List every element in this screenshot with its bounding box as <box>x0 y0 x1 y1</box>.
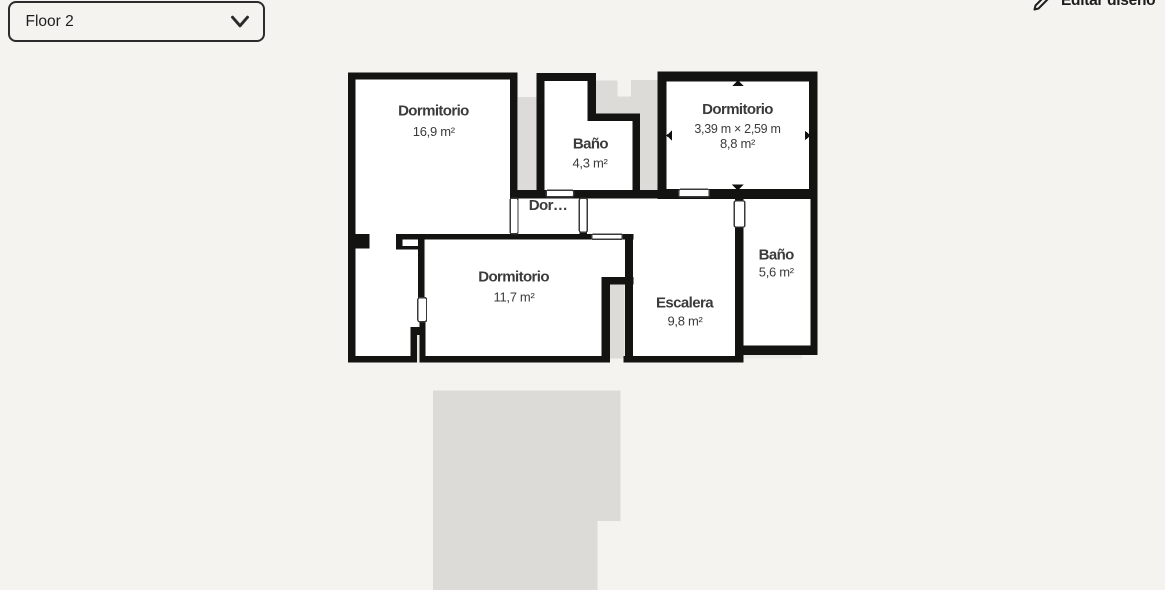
svg-text:11,7 m²: 11,7 m² <box>493 290 535 305</box>
svg-text:9,8 m²: 9,8 m² <box>667 313 703 328</box>
svg-text:Dormitorio: Dormitorio <box>478 268 549 285</box>
svg-text:Escalera: Escalera <box>656 295 714 312</box>
svg-text:Dormitorio: Dormitorio <box>702 101 773 118</box>
svg-text:Baño: Baño <box>759 247 795 264</box>
svg-text:8,8 m²: 8,8 m² <box>720 136 756 151</box>
svg-text:4,3 m²: 4,3 m² <box>572 156 608 171</box>
svg-text:Dor…: Dor… <box>529 197 567 214</box>
svg-text:Dormitorio: Dormitorio <box>398 103 469 120</box>
svg-text:Baño: Baño <box>573 136 609 153</box>
svg-text:5,6 m²: 5,6 m² <box>759 265 795 280</box>
svg-text:16,9 m²: 16,9 m² <box>413 124 456 139</box>
svg-text:3,39 m × 2,59 m: 3,39 m × 2,59 m <box>694 122 780 136</box>
